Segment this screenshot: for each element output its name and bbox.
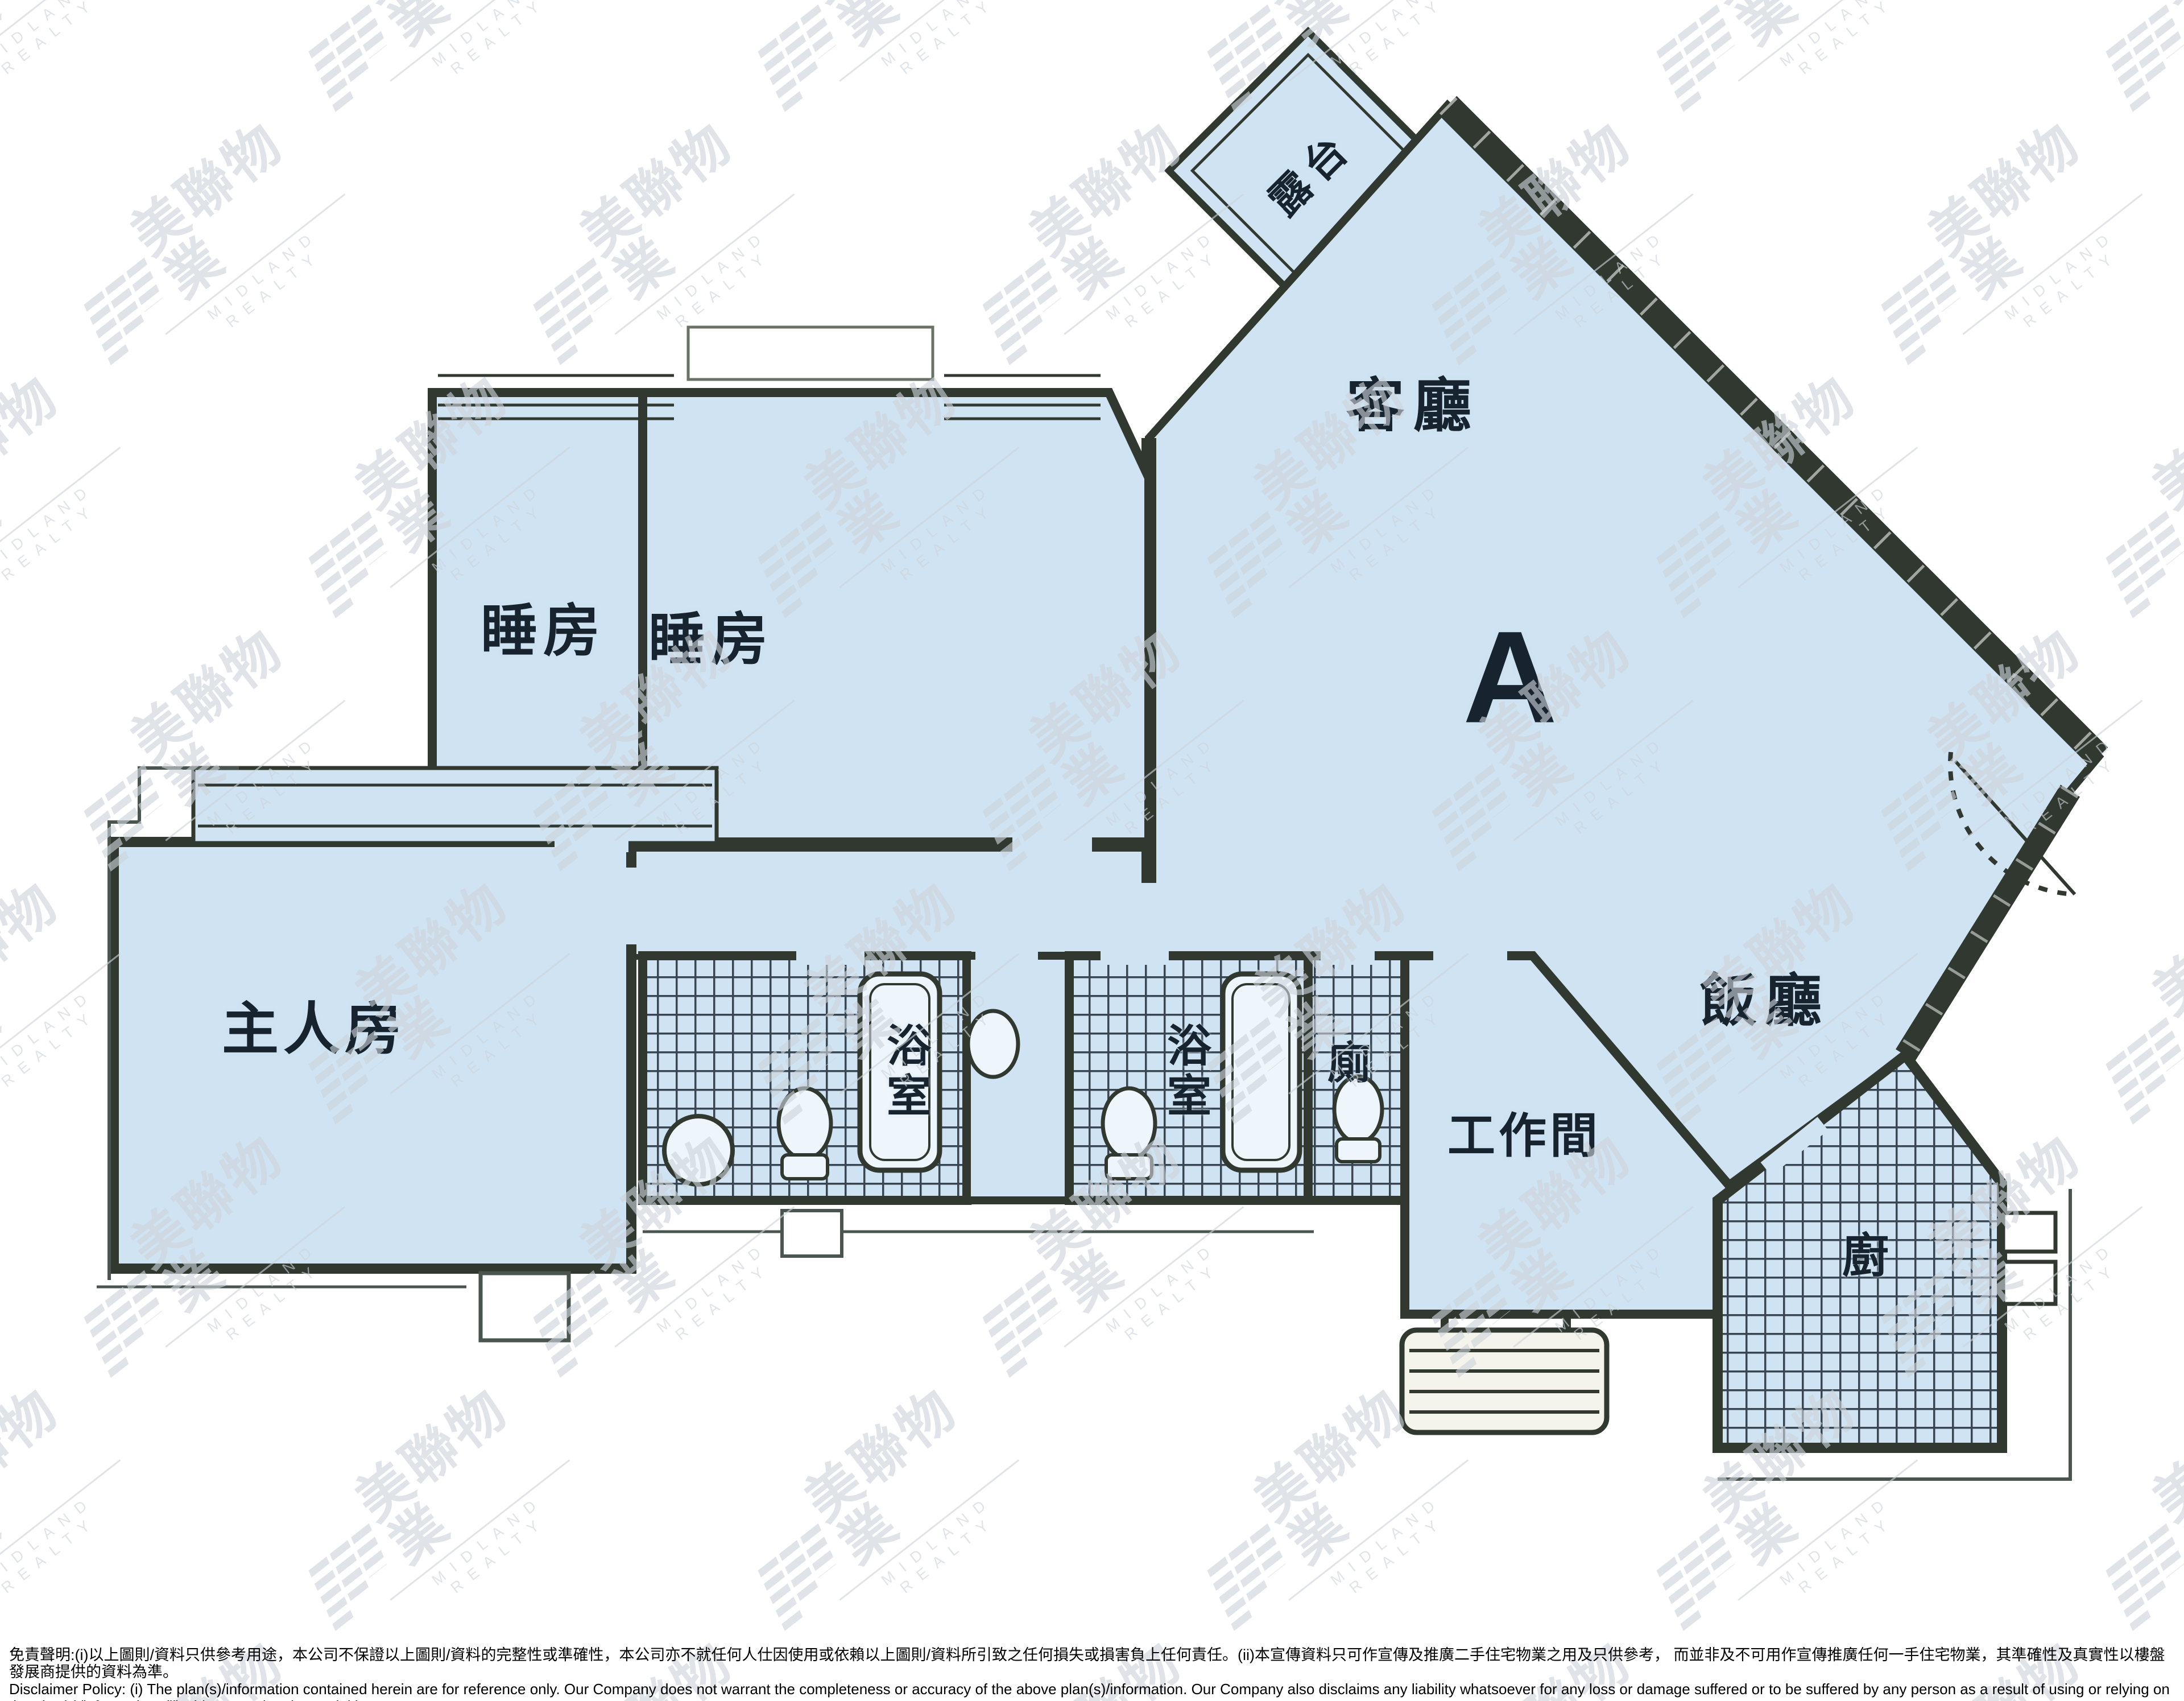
louvre-platform [1402,1314,1607,1432]
bathtub [1223,974,1300,1170]
bedroom2-label: 睡房 [648,593,773,676]
kitchen-shelf [2003,1262,2055,1304]
kitchen-shelf [2003,1213,2055,1252]
wash-basin [664,1116,733,1184]
floor-plan-drawing [0,0,2184,1701]
floor-plan-page: 露台 客廳 A 睡房 睡房 主人房 浴室 浴室 廁 工作間 飯廳 廚 美聯物業M… [0,0,2184,1701]
toilet-label: 廁 [1327,1028,1371,1091]
kitchen-label: 廚 [1842,1218,1889,1286]
workroom-label: 工作間 [1447,1098,1601,1167]
duct-box [782,1211,842,1256]
disclaimer-footer: 免責聲明:(i)以上圖則/資料只供參考用途，本公司不保證以上圖則/資料的完整性或… [9,1646,2176,1701]
toilet-fixture [779,1088,831,1179]
toilet-fixture [1103,1088,1155,1179]
duct-box [481,1273,569,1340]
bathroom2-label: 浴室 [1154,1022,1218,1122]
master-bay-window [193,768,717,843]
dining-room-label: 飯廳 [1700,955,1830,1037]
bathroom1-label: 浴室 [874,1022,937,1122]
bedroom1-label: 睡房 [481,585,606,667]
master-bedroom-label: 主人房 [222,983,406,1066]
ac-recess [688,327,933,379]
disclaimer-line-zh: 免責聲明:(i)以上圖則/資料只供參考用途，本公司不保證以上圖則/資料的完整性或… [9,1646,2176,1681]
wash-basin [968,1011,1018,1077]
unit-a-label: A [1463,602,1557,753]
living-room-label: 客廳 [1346,360,1480,443]
corridor-floor [636,852,1148,954]
disclaimer-line-en1: Disclaimer Policy: (i) The plan(s)/infor… [9,1681,2176,1701]
bath-lobby-shape [967,956,1069,1200]
